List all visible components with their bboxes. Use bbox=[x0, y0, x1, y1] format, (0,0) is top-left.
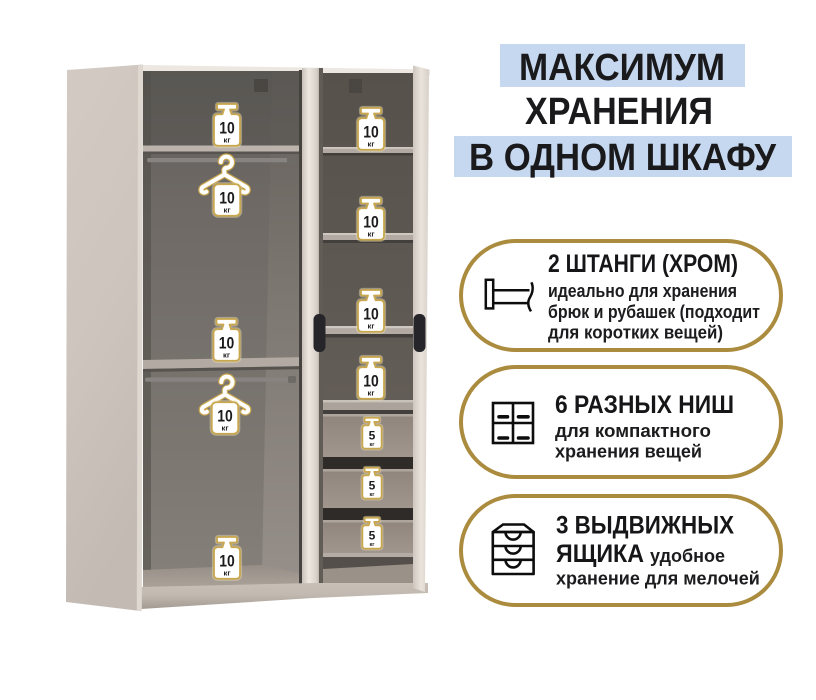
svg-text:удобное: удобное bbox=[650, 546, 725, 566]
svg-text:2 ШТАНГИ (ХРОМ): 2 ШТАНГИ (ХРОМ) bbox=[548, 250, 738, 278]
svg-text:В ОДНОМ ШКАФУ: В ОДНОМ ШКАФУ bbox=[469, 137, 776, 179]
svg-text:6 РАЗНЫХ НИШ: 6 РАЗНЫХ НИШ bbox=[555, 391, 734, 419]
svg-text:МАКСИМУМ: МАКСИМУМ bbox=[519, 47, 725, 89]
svg-text:для коротких вещей): для коротких вещей) bbox=[548, 323, 723, 343]
svg-text:ХРАНЕНИЯ: ХРАНЕНИЯ bbox=[525, 91, 713, 133]
svg-text:ЯЩИКА: ЯЩИКА bbox=[556, 540, 644, 568]
svg-text:идеально для хранения: идеально для хранения bbox=[548, 281, 737, 301]
svg-text:хранение для мелочей: хранение для мелочей bbox=[556, 569, 760, 589]
svg-text:3 ВЫДВИЖНЫХ: 3 ВЫДВИЖНЫХ bbox=[556, 512, 734, 540]
svg-text:брюк и рубашек (подходит: брюк и рубашек (подходит bbox=[548, 302, 760, 322]
svg-text:для компактного: для компактного bbox=[555, 421, 711, 441]
svg-text:хранения вещей: хранения вещей bbox=[555, 442, 702, 462]
